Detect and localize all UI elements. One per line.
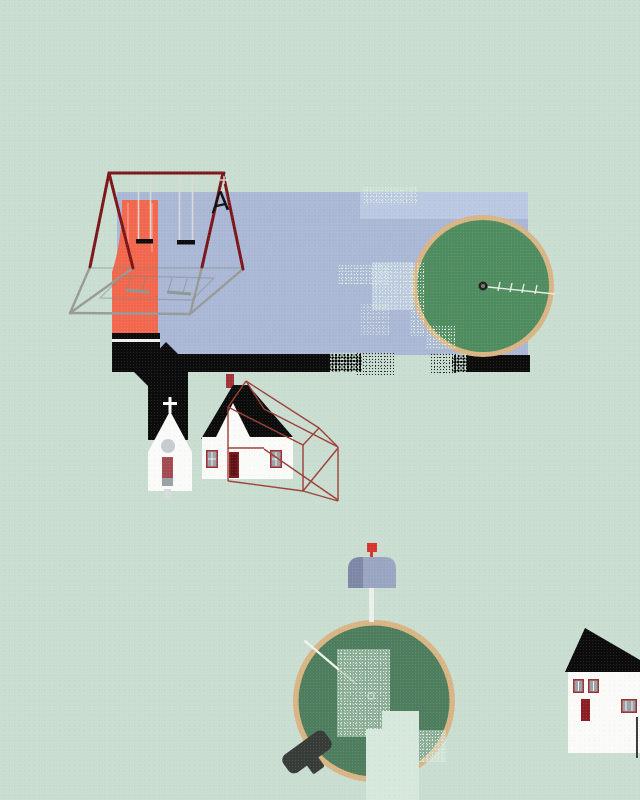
needle-bottom [305,641,374,699]
needle-thread [338,669,355,683]
grommet-center [481,284,485,288]
thread-layer [0,0,640,800]
stitch-thread-top [479,282,556,295]
thread-loop [368,693,374,699]
needle [305,641,338,669]
illustration-canvas: A [0,0,640,800]
